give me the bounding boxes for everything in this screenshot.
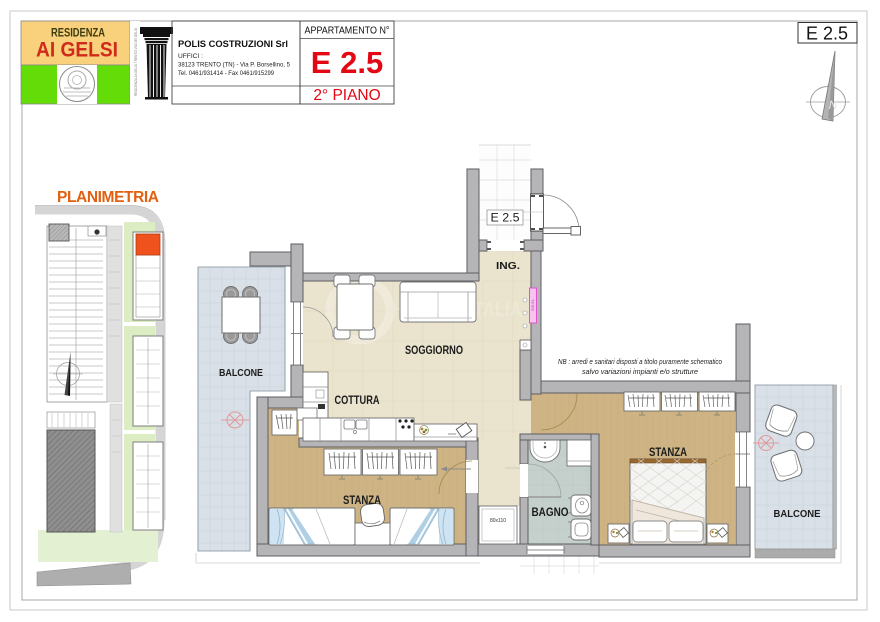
svg-text:UFFICI :: UFFICI : xyxy=(178,53,203,60)
svg-text:STANZA: STANZA xyxy=(343,495,381,507)
svg-text:BALCONE: BALCONE xyxy=(219,368,263,379)
svg-text:BAGNO: BAGNO xyxy=(532,507,569,519)
svg-text:N: N xyxy=(829,98,838,112)
svg-text:PLANIMETRIA: PLANIMETRIA xyxy=(57,189,159,206)
svg-text:STANZA: STANZA xyxy=(649,447,687,459)
svg-text:SOGGIORNO: SOGGIORNO xyxy=(405,345,463,357)
svg-text:E 2.5: E 2.5 xyxy=(311,45,383,80)
svg-text:ING.EL: ING.EL xyxy=(531,299,535,311)
svg-text:Tel. 0461/931414 - Fax 0461/91: Tel. 0461/931414 - Fax 0461/915299 xyxy=(178,70,274,77)
svg-text:BALCONE: BALCONE xyxy=(774,509,821,520)
svg-text:ING.: ING. xyxy=(496,260,520,272)
svg-text:COTTURA: COTTURA xyxy=(335,395,380,407)
svg-text:E 2.5: E 2.5 xyxy=(806,24,848,44)
svg-text:E 2.5: E 2.5 xyxy=(491,213,520,225)
svg-text:salvo variazioni impianti e/o: salvo variazioni impianti e/o strutture xyxy=(582,367,698,376)
svg-text:APPARTAMENTO N°: APPARTAMENTO N° xyxy=(305,25,390,37)
svg-text:RESIDENZA AI GELSI TRENTO VIA: RESIDENZA AI GELSI TRENTO VIA DEI GELSI xyxy=(134,28,138,96)
svg-text:AI GELSI: AI GELSI xyxy=(36,39,118,62)
svg-text:2° PIANO: 2° PIANO xyxy=(313,87,380,104)
svg-text:NB : arredi e sanitari dispost: NB : arredi e sanitari disposti a titolo… xyxy=(558,357,722,366)
svg-text:38123 TRENTO (TN) - Via P. Bor: 38123 TRENTO (TN) - Via P. Borsellino, 5 xyxy=(178,62,290,69)
svg-text:POLIS COSTRUZIONI Srl: POLIS COSTRUZIONI Srl xyxy=(178,39,288,50)
svg-text:80x110: 80x110 xyxy=(490,518,506,524)
